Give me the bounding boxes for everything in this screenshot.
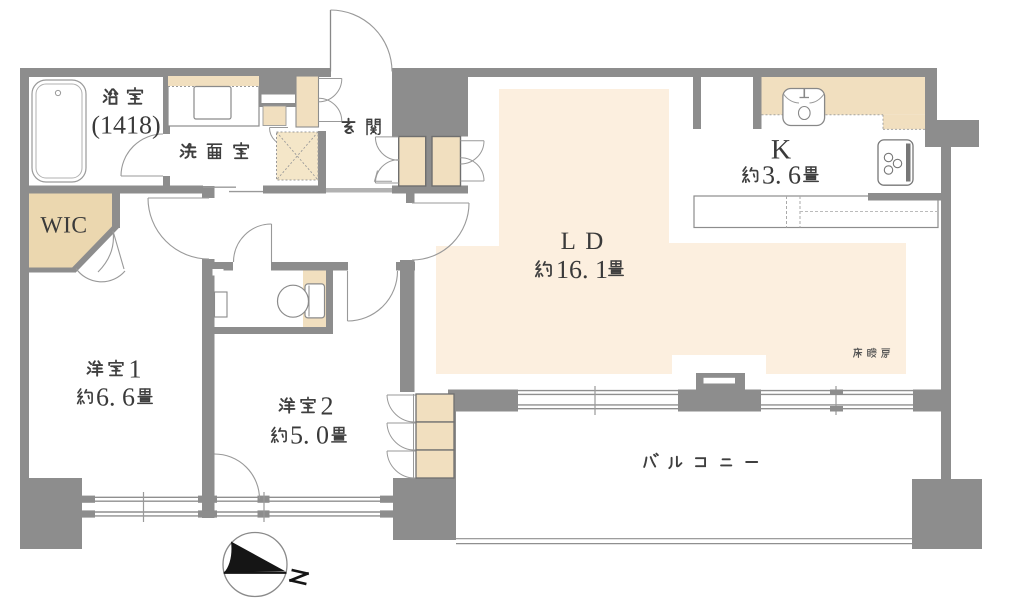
svg-text:WIC: WIC (40, 213, 87, 239)
svg-text:16. 1: 16. 1 (556, 255, 608, 284)
svg-text:5. 0: 5. 0 (290, 421, 329, 450)
svg-text:2: 2 (321, 392, 334, 421)
svg-text:3. 6: 3. 6 (762, 161, 801, 190)
svg-text:(1418): (1418) (91, 111, 160, 140)
svg-text:1: 1 (129, 355, 142, 384)
svg-text:L D: L D (561, 228, 606, 255)
svg-text:6. 6: 6. 6 (96, 383, 135, 412)
